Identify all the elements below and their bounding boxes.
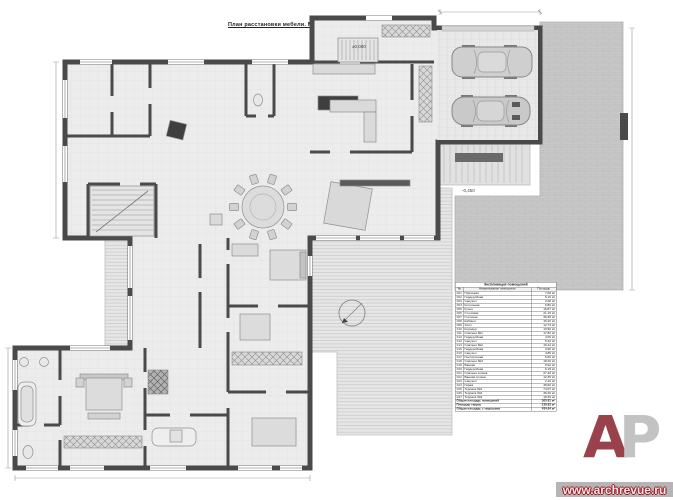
- elevation-label: ±0,000: [352, 44, 366, 49]
- tv-cabinet: [340, 180, 410, 186]
- legend-rows: 001Прихожая7.08 м²002Гардеробная5.10 м²0…: [455, 291, 556, 399]
- step-landing: [455, 153, 503, 162]
- gate-post: [620, 113, 628, 140]
- car-icon: [452, 45, 532, 79]
- desk-1: [232, 244, 258, 256]
- logo-letter-p: Р: [619, 403, 662, 471]
- main-stair: [90, 186, 154, 236]
- blueprint-canvas: План расстановки мебели. М 1:50.: [0, 0, 673, 500]
- bed-2: [240, 314, 270, 340]
- website-strip: www.archrevue.ru: [556, 482, 673, 497]
- living-rug: [324, 182, 373, 231]
- legend-table: Экспликация помещений № Наименование пом…: [455, 282, 557, 412]
- sink: [20, 358, 29, 367]
- toilet: [23, 446, 33, 459]
- room-schedule: Экспликация помещений № Наименование пом…: [455, 282, 556, 398]
- car-icon: [452, 95, 530, 127]
- kitchen-counter: [313, 64, 375, 74]
- ap-logo: АР: [583, 408, 661, 466]
- shower-box: [148, 370, 168, 394]
- entry-stair: [338, 38, 378, 62]
- armchair: [210, 214, 222, 225]
- master-bed: [86, 378, 122, 410]
- toilet: [254, 94, 263, 106]
- exterior-steps: [438, 143, 530, 185]
- bed-3: [252, 418, 296, 446]
- legend-total-row: Общая площадь с террасами434.64 м²: [455, 407, 556, 411]
- washer: [170, 430, 182, 442]
- total-value: 434.64 м²: [531, 407, 556, 411]
- sofa-chaise: [364, 112, 376, 142]
- website-url: www.archrevue.ru: [563, 483, 667, 497]
- total-label: Общая площадь с террасами: [455, 407, 531, 411]
- sink: [40, 358, 49, 367]
- bed-bench: [88, 413, 120, 419]
- elevation-label: -0,450: [462, 188, 475, 193]
- garage-door: [442, 26, 534, 31]
- legend-totals: Общая площадь помещений305.81 м²Площадь …: [455, 399, 556, 411]
- floor-plan-svg: ±0,000 -0,450: [0, 0, 673, 500]
- sofa: [330, 100, 376, 112]
